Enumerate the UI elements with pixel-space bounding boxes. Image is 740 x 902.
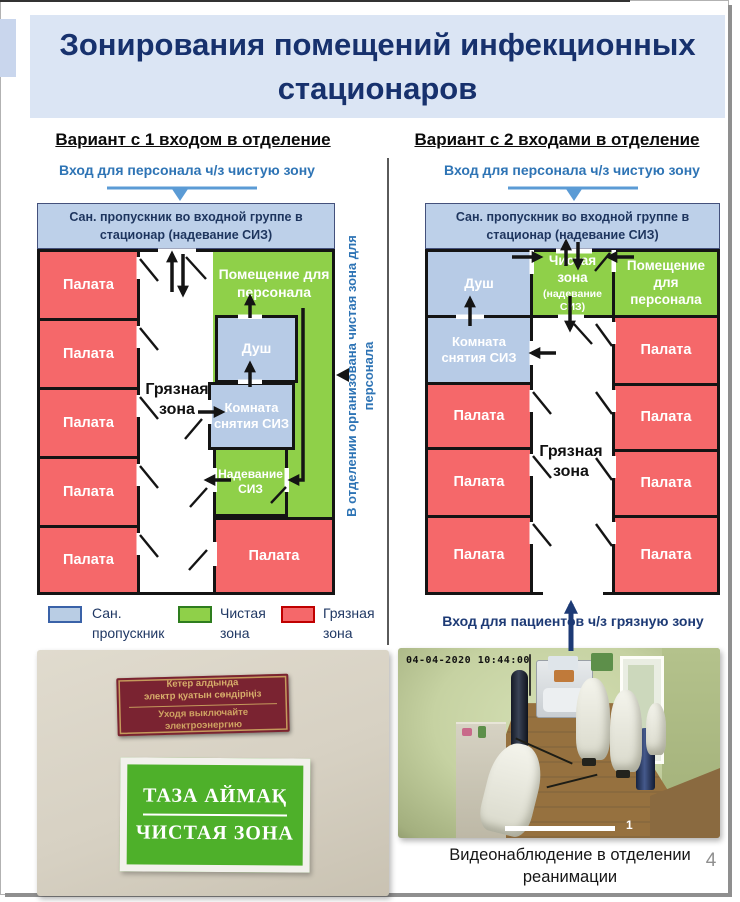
slide-top-border xyxy=(0,0,630,2)
plan1-heading: Вариант с 1 входом в отделение xyxy=(38,130,348,150)
legend-swatch-san xyxy=(48,606,82,623)
page-title: Зонирования помещений инфекционных стаци… xyxy=(30,15,725,118)
legend-label-clean: Чистая зона xyxy=(220,603,284,644)
title-edge-tab xyxy=(0,19,16,77)
cctv-pillow xyxy=(548,656,578,670)
plan1-side-note: В отделении организована чистая зона для… xyxy=(344,211,386,541)
red-electricity-sign: Кетер алдында электр қуатын сөндіріңіз У… xyxy=(116,674,289,736)
plan1-outer-wall xyxy=(37,249,335,595)
cctv-timestamp: 04-04-2020 10:44:00 xyxy=(406,655,530,666)
legend-label-san: Сан. пропускник xyxy=(92,603,184,644)
cctv-bottom-bar xyxy=(505,826,615,831)
plan2-outer-wall xyxy=(425,249,720,595)
cctv-shelf-plants xyxy=(591,653,613,671)
green-sign-line-1: ТАЗА АЙМАҚ xyxy=(127,783,303,809)
panel-divider xyxy=(387,158,389,645)
cctv-counter-item-pink xyxy=(462,728,472,736)
cctv-ppe-worker-4 xyxy=(646,703,666,755)
cctv-caption: Видеонаблюдение в отделении реанимации xyxy=(420,844,720,889)
cctv-camera-number: 1 xyxy=(626,818,633,832)
cctv-ppe-worker-2 xyxy=(576,678,610,760)
plan2-heading: Вариант с 2 входами в отделение xyxy=(405,130,709,150)
cctv-ppe-worker-3 xyxy=(610,690,642,772)
plan2-san-checkpoint-box: Сан. пропускник во входной группе в стац… xyxy=(425,203,720,249)
floor-plan-2: Душ Чистая зона (надевание СИЗ) Помещени… xyxy=(425,249,720,595)
cctv-patient xyxy=(554,670,574,682)
legend-swatch-clean xyxy=(178,606,212,623)
page-number: 4 xyxy=(698,850,724,872)
plan2-staff-entry-label: Вход для персонала ч/з чистую зону xyxy=(437,162,707,178)
photo-cctv-icu: 04-04-2020 10:44:00 1 xyxy=(398,648,720,838)
green-sign-line-2: ЧИСТАЯ ЗОНА xyxy=(127,820,303,846)
floor-plan-1: Палата Палата Палата Палата Палата Помещ… xyxy=(37,249,335,595)
green-clean-zone-sign: ТАЗА АЙМАҚ ЧИСТАЯ ЗОНА xyxy=(120,757,311,872)
cctv-oxygen-cylinder-dark xyxy=(511,670,528,749)
legend-label-dirty: Грязная зона xyxy=(323,603,397,644)
cctv-worker-2-boots xyxy=(582,758,596,766)
green-sign-divider xyxy=(143,813,287,816)
cctv-worker-3-boots xyxy=(616,770,630,778)
slide-shadow-right xyxy=(728,5,732,894)
cctv-counter-item-green xyxy=(478,726,486,738)
plan1-staff-entry-label: Вход для персонала ч/з чистую зону xyxy=(57,162,317,178)
legend-swatch-dirty xyxy=(281,606,315,623)
plan2-patient-entry-label: Вход для пациентов ч/з грязную зону xyxy=(423,613,723,629)
photo-wall-signs: Кетер алдында электр қуатын сөндіріңіз У… xyxy=(37,650,389,896)
plan1-san-checkpoint-box: Сан. пропускник во входной группе в стац… xyxy=(37,203,335,249)
